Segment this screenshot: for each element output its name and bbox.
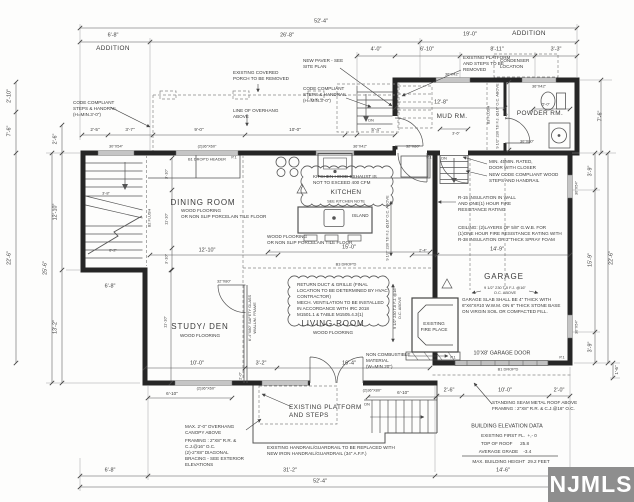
stairs-main <box>86 162 143 258</box>
dimension-lines <box>16 28 613 487</box>
floor-plan-canvas: 52'-4"6'-8"ADDITION26'-8"19'-0"ADDITION4… <box>0 0 634 502</box>
dashed-lines <box>147 54 573 424</box>
njmls-watermark: NJMLS <box>548 467 634 502</box>
fireplace <box>406 298 460 360</box>
garage-door-panel <box>455 361 548 366</box>
revision-clouds <box>288 166 393 326</box>
wall-openings <box>98 77 574 387</box>
stairs-exterior-top <box>357 86 393 132</box>
sink <box>549 123 570 148</box>
extension-lines <box>46 24 620 491</box>
floor-plan-drawing <box>0 0 634 502</box>
front-platform-steps <box>253 386 437 444</box>
leader-arrows <box>110 68 538 430</box>
toilet <box>541 92 566 110</box>
kitchen-island <box>298 207 372 241</box>
door-swings <box>218 118 530 383</box>
windows <box>98 78 572 386</box>
